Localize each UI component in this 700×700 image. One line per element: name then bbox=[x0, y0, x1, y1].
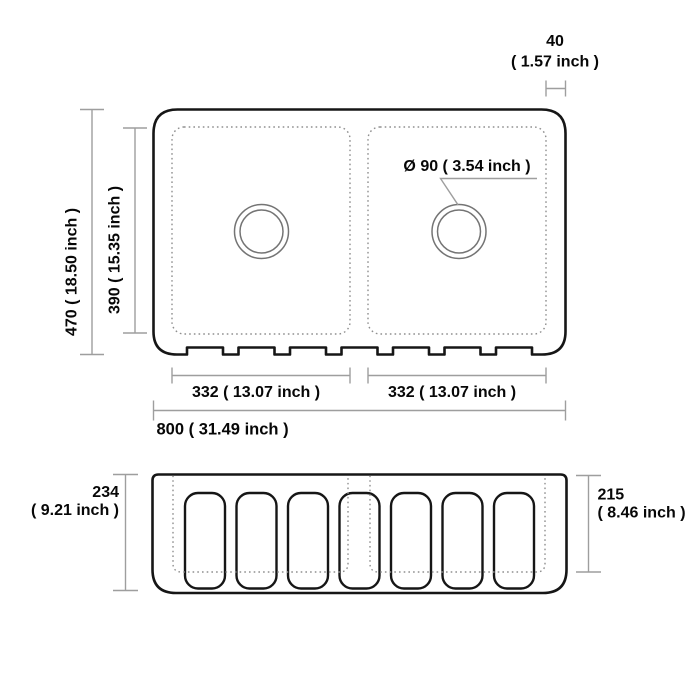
inner-height-inch-label: ( 8.46 inch ) bbox=[598, 505, 686, 522]
overall-width-label: 800 ( 31.49 inch ) bbox=[157, 421, 289, 439]
dim-overall-depth-lines bbox=[80, 110, 104, 355]
left-bowl-width-label: 332 ( 13.07 inch ) bbox=[192, 384, 320, 401]
top-view-sink-outline bbox=[154, 110, 566, 355]
rim-offset-inch-label: ( 1.57 inch ) bbox=[511, 54, 599, 71]
bowl-depth-label: 390 ( 15.35 inch ) bbox=[107, 186, 124, 314]
dim-rim-offset-lines bbox=[546, 81, 566, 97]
flute-2 bbox=[237, 493, 277, 589]
sink-dimension-drawing: Ø 90 ( 3.54 inch ) 40 ( 1.57 inch ) 470 … bbox=[0, 0, 700, 700]
flute-3 bbox=[288, 493, 328, 589]
flute-5 bbox=[391, 493, 431, 589]
dim-right-bowl-width-lines bbox=[368, 368, 546, 384]
flute-1 bbox=[185, 493, 225, 589]
flute-4 bbox=[340, 493, 380, 589]
apron-flutes bbox=[185, 493, 534, 589]
inner-height-value-label: 215 bbox=[598, 487, 625, 504]
drain-diameter-label: Ø 90 ( 3.54 inch ) bbox=[403, 158, 530, 175]
right-bowl-width-label: 332 ( 13.07 inch ) bbox=[388, 384, 516, 401]
overall-depth-label: 470 ( 18.50 inch ) bbox=[64, 208, 81, 336]
overall-height-inch-label: ( 9.21 inch ) bbox=[31, 502, 119, 519]
drawing-canvas: Ø 90 ( 3.54 inch ) 40 ( 1.57 inch ) 470 … bbox=[0, 0, 700, 700]
rim-offset-value-label: 40 bbox=[546, 33, 564, 50]
dim-bowl-depth-lines bbox=[123, 128, 147, 333]
flute-6 bbox=[443, 493, 483, 589]
dim-left-bowl-width-lines bbox=[172, 368, 350, 384]
flute-7 bbox=[494, 493, 534, 589]
overall-height-value-label: 234 bbox=[92, 484, 119, 501]
dim-overall-width-lines bbox=[154, 401, 566, 421]
